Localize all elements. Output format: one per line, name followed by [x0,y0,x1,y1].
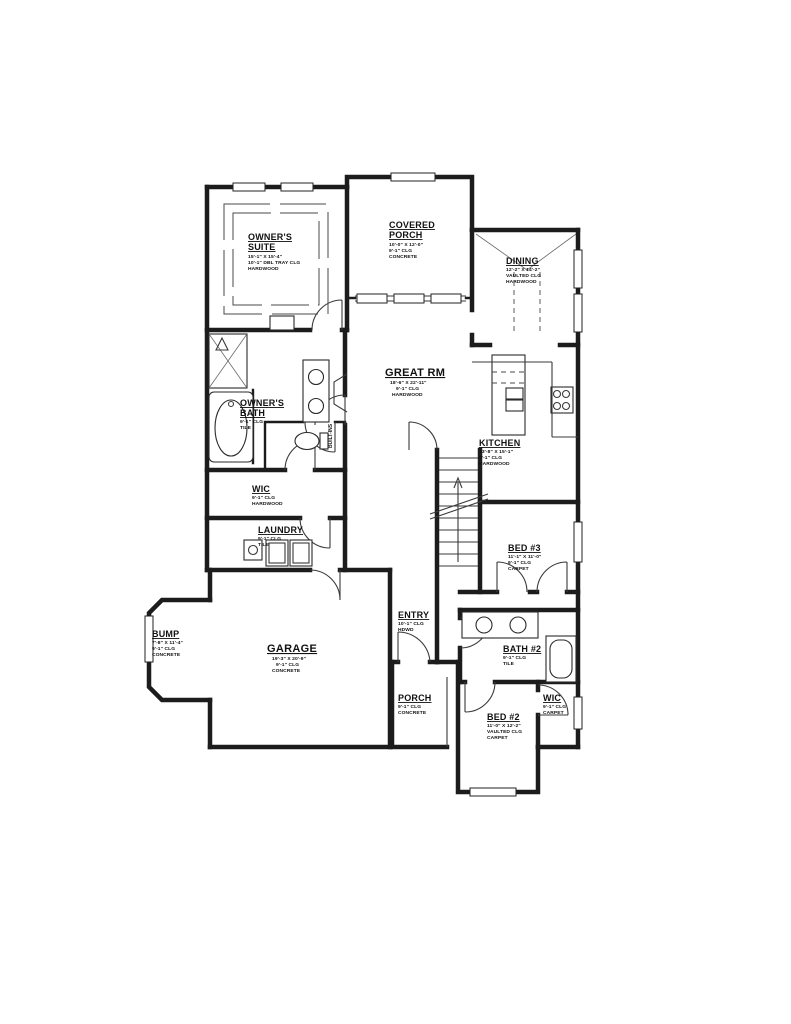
room-ceiling: VAULTED CLG [506,273,541,279]
room-label-dining: DINING 12'-2" X 14'-2" VAULTED CLG HARDW… [506,256,541,285]
room-floor: CONCRETE [152,652,181,658]
room-name: WIC [543,693,561,703]
washer-dryer [266,540,312,566]
room-ceiling: 9'-1" CLG [398,704,421,710]
kitchen-island [492,355,525,435]
room-ceiling: 9'-1" CLG [258,536,281,542]
room-name: BATH #2 [503,644,541,654]
room-floor: HARDWOOD [248,266,279,272]
room-label-wic-1: WIC 9'-1" CLG HARDWOOD [252,484,283,507]
room-label-garage: GARAGE 19'-3" X 20'-9" 9'-1" CLG CONCRET… [267,643,317,674]
room-dims: 7'-8" X 11'-4" [152,640,183,646]
room-label-bed-3: BED #3 11'-1" X 11'-0" 9'-1" CLG CARPET [508,543,541,572]
room-ceiling: 10'-1" CLG [398,621,424,627]
toilet [295,433,328,450]
room-name: KITCHEN [479,438,520,448]
room-ceiling: 9'-1" CLG [396,386,419,392]
room-dims: 13'-8" X 15'-1" [479,449,513,455]
room-floor: CONCRETE [272,668,301,674]
room-floor: HDWD [398,627,414,633]
room-label-entry: ENTRY 10'-1" CLG HDWD [398,610,429,633]
room-name: GARAGE [267,643,317,655]
room-dims: 19'-3" X 20'-9" [272,656,306,662]
room-dims: 11'-1" X 11'-0" [508,554,541,560]
room-dims: 11'-0" X 12'-2" [487,723,521,729]
room-label-covered-porch: COVERED PORCH 10'-0" X 12'-0" 9'-1" CLG … [389,220,435,260]
room-name: ENTRY [398,610,429,620]
room-floor: HARDWOOD [252,501,283,507]
bath2-tub [546,636,576,682]
room-ceiling: 10'-1" DBL TRAY CLG [248,260,300,266]
shower [209,334,247,388]
room-name-2: SUITE [248,242,276,252]
room-ceiling: VAULTED CLG [487,729,522,735]
room-name: BED #3 [508,543,541,553]
room-floor: CARPET [543,710,564,716]
room-dims: 12'-2" X 14'-2" [506,267,540,273]
room-floor: CARPET [508,566,529,572]
range [551,387,573,413]
room-name: BUMP [152,629,179,639]
room-label-bath-2: BATH #2 9'-1" CLG TILE [503,644,541,667]
room-floor: TILE [258,542,270,548]
room-dims: 18'-6" X 22'-11" [390,380,427,386]
room-floor: HARDWOOD [506,279,537,285]
room-floor: TILE [503,661,515,667]
floor-plan-page: OWNER'S SUITE 15'-1" X 15'-4" 10'-1" DBL… [0,0,791,1024]
room-name: GREAT RM [385,367,445,379]
room-ceiling: 9'-1" CLG [240,419,263,425]
room-name: COVERED [389,220,435,230]
room-name-2: BATH [240,408,265,418]
room-floor: HARDWOOD [479,461,510,467]
room-floor: CONCRETE [398,710,427,716]
room-ceiling: 9'-1" CLG [508,560,531,566]
annotation-built-ins: BUILT-INS [328,423,334,448]
room-ceiling: 9'-1" CLG [503,655,526,661]
room-ceiling: 9'-1" CLG [389,248,412,254]
room-name-2: PORCH [389,230,423,240]
room-label-bump: BUMP 7'-8" X 11'-4" 9'-1" CLG CONCRETE [152,629,183,658]
room-label-porch: PORCH 9'-1" CLG CONCRETE [398,693,432,716]
room-name: WIC [252,484,270,494]
room-label-bed-2: BED #2 11'-0" X 12'-2" VAULTED CLG CARPE… [487,712,522,741]
room-ceiling: 9'-1" CLG [479,455,502,461]
room-name: OWNER'S [248,232,292,242]
room-floor: CONCRETE [389,254,418,260]
room-ceiling: 9'-1" CLG [276,662,299,668]
room-label-owners-suite: OWNER'S SUITE 15'-1" X 15'-4" 10'-1" DBL… [248,232,300,272]
room-name: PORCH [398,693,432,703]
room-label-owners-bath: OWNER'S BATH 9'-1" CLG TILE [240,398,284,431]
room-ceiling: 9'-1" CLG [543,704,566,710]
room-name: LAUNDRY [258,525,303,535]
vanity-double-sink [303,360,329,422]
room-floor: TILE [240,425,252,431]
built-ins-label: BUILT-INS [328,423,334,448]
room-name: OWNER'S [240,398,284,408]
room-ceiling: 9'-1" CLG [252,495,275,501]
room-label-wic-2: WIC 9'-1" CLG CARPET [543,693,566,716]
room-ceiling: 9'-1" CLG [152,646,175,652]
room-name: BED #2 [487,712,520,722]
room-name: DINING [506,256,539,266]
room-label-kitchen: KITCHEN 13'-8" X 15'-1" 9'-1" CLG HARDWO… [479,438,520,467]
floor-plan-svg: OWNER'S SUITE 15'-1" X 15'-4" 10'-1" DBL… [0,0,791,1024]
room-label-great-rm: GREAT RM 18'-6" X 22'-11" 9'-1" CLG HARD… [385,367,445,398]
room-dims: 15'-1" X 15'-4" [248,254,282,260]
room-floor: CARPET [487,735,508,741]
room-dims: 10'-0" X 12'-0" [389,242,423,248]
bath2-vanity [462,612,538,638]
room-floor: HARDWOOD [392,392,423,398]
